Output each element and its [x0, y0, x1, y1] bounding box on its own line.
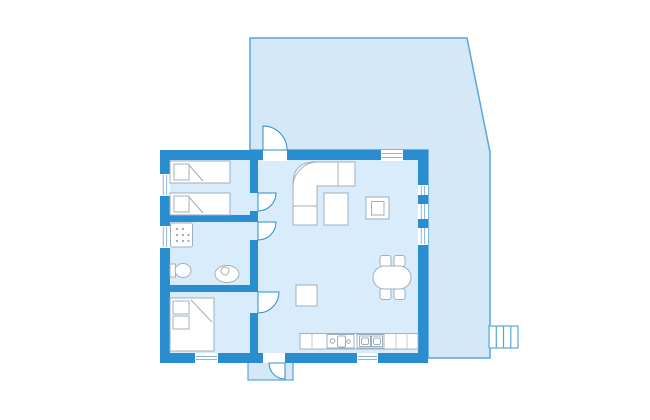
toilet-bowl [175, 264, 191, 278]
opening-bedroom-twin [250, 193, 258, 211]
terrace-steps [489, 326, 518, 348]
pillow-2 [173, 316, 189, 329]
coffee-table [324, 193, 348, 225]
opening-terrace-door [263, 150, 287, 161]
dot [187, 234, 189, 236]
pillow [174, 164, 189, 180]
window-left-2 [160, 226, 170, 248]
knob [347, 340, 351, 344]
window-left-1 [160, 174, 170, 196]
double-bed [170, 298, 214, 351]
dot [176, 234, 178, 236]
chair [394, 256, 405, 267]
wood-stove [366, 197, 389, 219]
burner [330, 339, 335, 344]
chair [380, 289, 391, 300]
dining-table [373, 266, 411, 289]
floor-plan-canvas [0, 0, 650, 420]
dot [187, 240, 189, 242]
single-bed-2 [170, 193, 230, 215]
kitchen-counter [300, 334, 418, 350]
dot [176, 240, 178, 242]
toilet [170, 264, 191, 278]
window-bottom-1 [195, 353, 218, 363]
stove-door [372, 202, 385, 216]
opening-entrance-door [263, 353, 285, 363]
window-bottom-2 [357, 353, 378, 363]
wall-bedroom-bathroom [170, 215, 250, 222]
chair [394, 289, 405, 300]
opening-bathroom [250, 222, 258, 240]
window-top [381, 150, 403, 161]
cooktop-unit [327, 335, 354, 349]
shower [171, 223, 193, 247]
dot [176, 228, 178, 230]
oven [338, 336, 346, 347]
pillow [174, 196, 189, 212]
dot [182, 234, 184, 236]
floor-plan-page [0, 0, 650, 420]
basin-right-inner [374, 338, 381, 345]
hall-wall-vertical [250, 160, 258, 353]
basin-left-inner [362, 338, 369, 345]
single-bed-1 [170, 161, 230, 183]
basin-bowl [221, 267, 229, 275]
pillow-1 [173, 301, 189, 314]
opening-bedroom-double [250, 292, 258, 313]
mullion-right-1 [418, 195, 428, 204]
window-right-band [418, 185, 428, 245]
washbasin [215, 266, 239, 283]
double-sink [357, 335, 384, 349]
dot [182, 228, 184, 230]
dot [182, 240, 184, 242]
wall-bathroom-bedroom [170, 285, 250, 292]
chair [380, 256, 391, 267]
side-table [296, 285, 317, 306]
mullion-right-2 [418, 219, 428, 228]
